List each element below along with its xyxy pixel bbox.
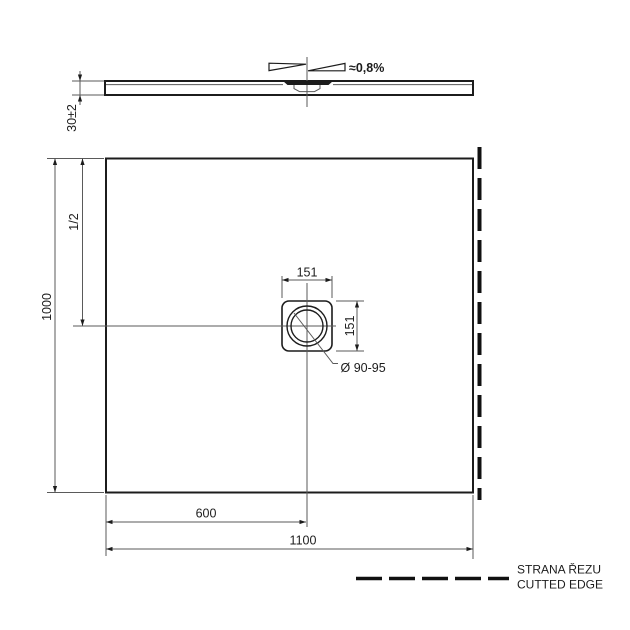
drain-height-arrow-top [355,301,359,308]
drain-width-label: 151 [297,266,318,280]
legend-label-english: CUTTED EDGE [517,578,603,592]
legend-label-czech: STRANA ŘEZU [517,562,601,577]
drain-diameter-label: Ø 90-95 [341,361,386,375]
thickness-arrow-top [78,75,82,82]
slope-wedge-right [308,63,345,70]
technical-drawing-page: 30±2 ≈0,8% 1000 1/2 [0,0,630,630]
drain-offset-arrow-right [300,520,307,524]
width-dimension-label: 1100 [290,534,317,548]
drain-offset-label: 600 [196,507,217,521]
thickness-dimension-label: 30±2 [65,104,79,132]
half-dimension-label: 1/2 [67,213,81,230]
height-arrow-bottom [53,486,57,493]
height-arrow-top [53,159,57,166]
drain-offset-arrow-left [106,520,113,524]
slope-wedge-left [269,63,306,70]
drain-height-arrow-bottom [355,345,359,352]
drain-width-arrow-left [282,278,289,282]
slope-label: ≈0,8% [349,61,384,75]
side-profile-view: 30±2 ≈0,8% [65,57,473,132]
cut-edge-legend: STRANA ŘEZU CUTTED EDGE [356,562,603,592]
half-arrow-top [80,159,84,166]
thickness-arrow-bottom [78,95,82,102]
shower-tray-drawing: 30±2 ≈0,8% 1000 1/2 [0,0,630,630]
width-arrow-left [106,547,113,551]
drain-flange-profile [283,81,333,85]
plan-view: 1000 1/2 151 151 Ø 90-95 600 [40,147,480,559]
drain-height-label: 151 [343,316,357,337]
drain-width-arrow-right [326,278,333,282]
thickness-extension-lines [72,81,104,95]
half-arrow-bottom [80,320,84,327]
width-arrow-right [467,547,474,551]
height-dimension-label: 1000 [40,293,54,321]
